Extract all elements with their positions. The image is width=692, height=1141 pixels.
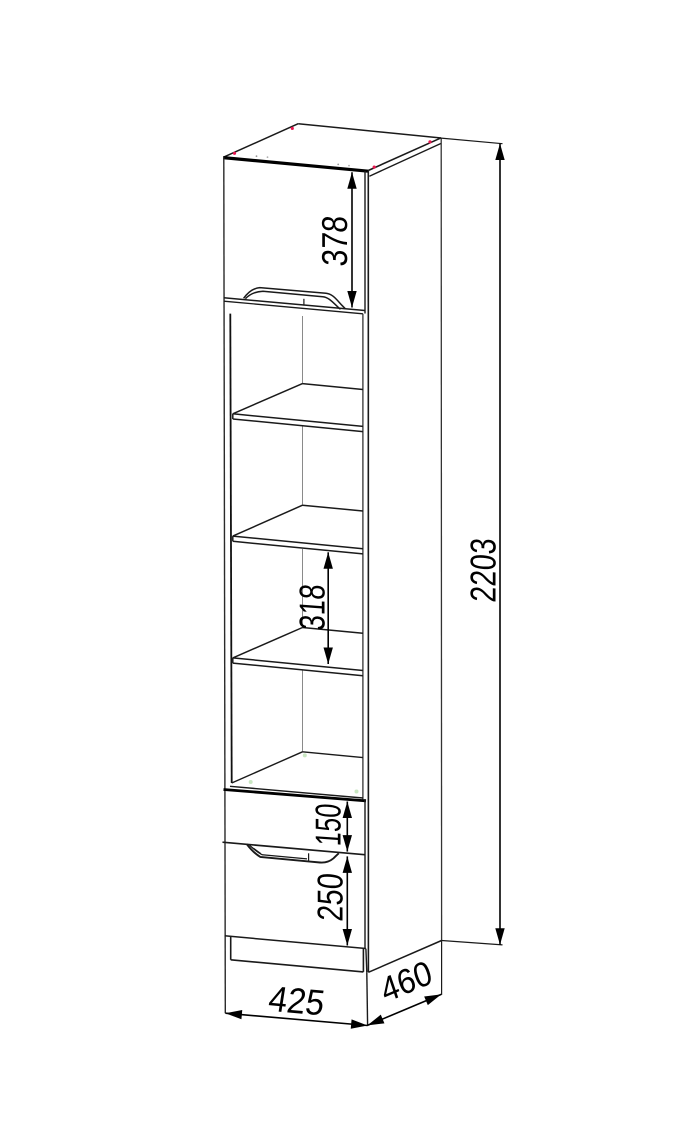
svg-text:250: 250: [310, 872, 351, 923]
svg-text:378: 378: [314, 214, 355, 267]
svg-text:318: 318: [292, 583, 333, 632]
svg-text:425: 425: [266, 978, 328, 1023]
svg-text:2203: 2203: [463, 537, 504, 604]
svg-text:150: 150: [308, 802, 349, 847]
